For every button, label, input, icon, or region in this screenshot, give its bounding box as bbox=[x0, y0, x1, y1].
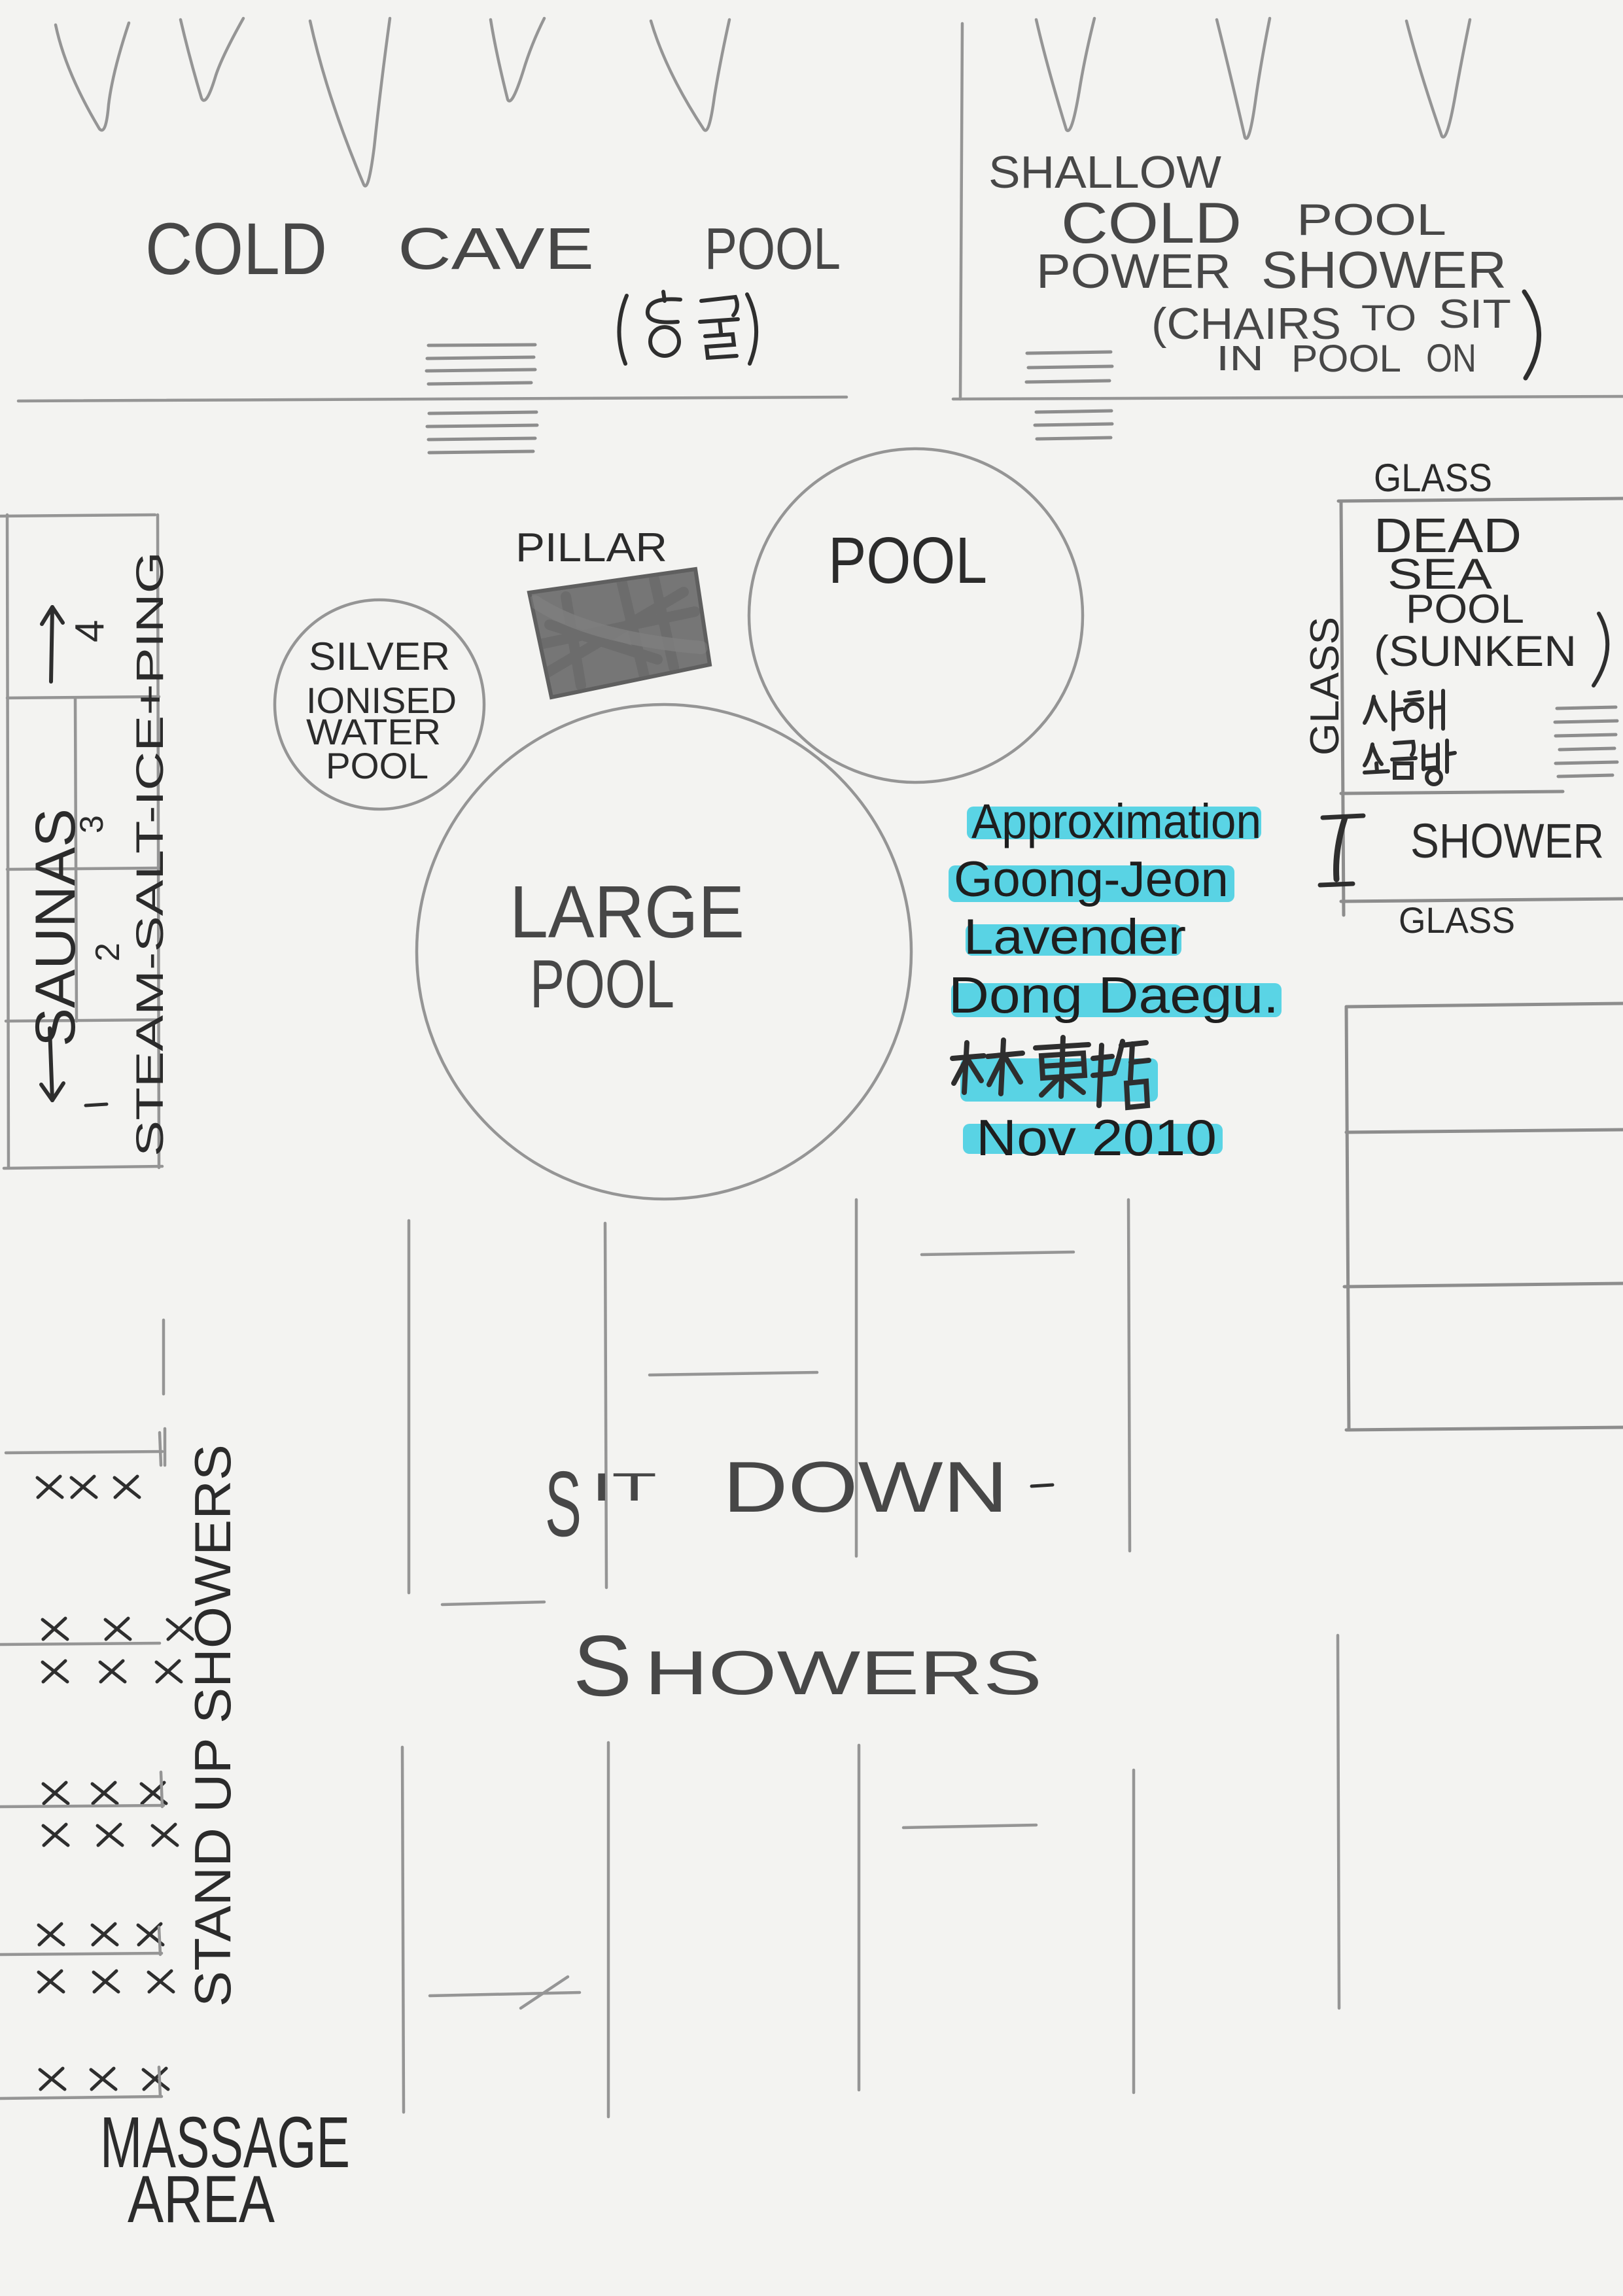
svg-text:(SUNKEN: (SUNKEN bbox=[1374, 627, 1577, 675]
svg-text:Goong-Jeon: Goong-Jeon bbox=[954, 852, 1229, 907]
svg-text:POOL: POOL bbox=[326, 745, 428, 786]
svg-text:ON: ON bbox=[1426, 336, 1476, 380]
svg-text:S: S bbox=[545, 1452, 582, 1556]
svg-text:CAVE: CAVE bbox=[398, 217, 594, 282]
svg-text:AREA: AREA bbox=[128, 2162, 275, 2236]
svg-text:IT: IT bbox=[591, 1465, 657, 1509]
svg-text:HOWERS: HOWERS bbox=[644, 1639, 1042, 1708]
svg-text:DOWN: DOWN bbox=[723, 1447, 1008, 1527]
svg-text:TO: TO bbox=[1361, 297, 1416, 338]
svg-text:SILVER: SILVER bbox=[309, 635, 450, 678]
svg-text:COLD: COLD bbox=[145, 208, 327, 290]
svg-text:Nov 2010: Nov 2010 bbox=[976, 1109, 1217, 1166]
svg-text:PILLAR: PILLAR bbox=[515, 525, 667, 570]
svg-text:POOL: POOL bbox=[705, 217, 841, 282]
svg-text:POWER: POWER bbox=[1036, 244, 1231, 298]
svg-text:Lavender: Lavender bbox=[964, 909, 1186, 965]
svg-text:IN: IN bbox=[1216, 339, 1264, 378]
svg-text:SIT: SIT bbox=[1439, 292, 1511, 337]
svg-text:GLASS: GLASS bbox=[1399, 899, 1515, 941]
svg-text:2: 2 bbox=[89, 943, 127, 962]
svg-text:SHOWER: SHOWER bbox=[1410, 814, 1604, 868]
svg-text:LARGE: LARGE bbox=[510, 871, 744, 953]
svg-text:POOL: POOL bbox=[530, 947, 674, 1022]
svg-text:SAUNAS: SAUNAS bbox=[24, 809, 87, 1047]
svg-text:Approximation: Approximation bbox=[971, 794, 1261, 848]
svg-text:GLASS: GLASS bbox=[1302, 617, 1348, 756]
svg-text:POOL: POOL bbox=[828, 524, 987, 597]
svg-text:GLASS: GLASS bbox=[1374, 456, 1492, 500]
svg-text:STAND UP SHOWERS: STAND UP SHOWERS bbox=[184, 1444, 241, 2007]
svg-text:POOL: POOL bbox=[1291, 338, 1401, 380]
svg-text:S: S bbox=[573, 1618, 632, 1714]
svg-text:Dong Daegu.: Dong Daegu. bbox=[949, 966, 1279, 1024]
svg-text:POOL: POOL bbox=[1406, 587, 1524, 632]
svg-text:4: 4 bbox=[67, 620, 113, 642]
svg-text:SHOWER: SHOWER bbox=[1261, 241, 1507, 299]
svg-text:POOL: POOL bbox=[1297, 195, 1446, 245]
svg-text:STEAM-SALT-ICE+PING: STEAM-SALT-ICE+PING bbox=[129, 551, 171, 1157]
